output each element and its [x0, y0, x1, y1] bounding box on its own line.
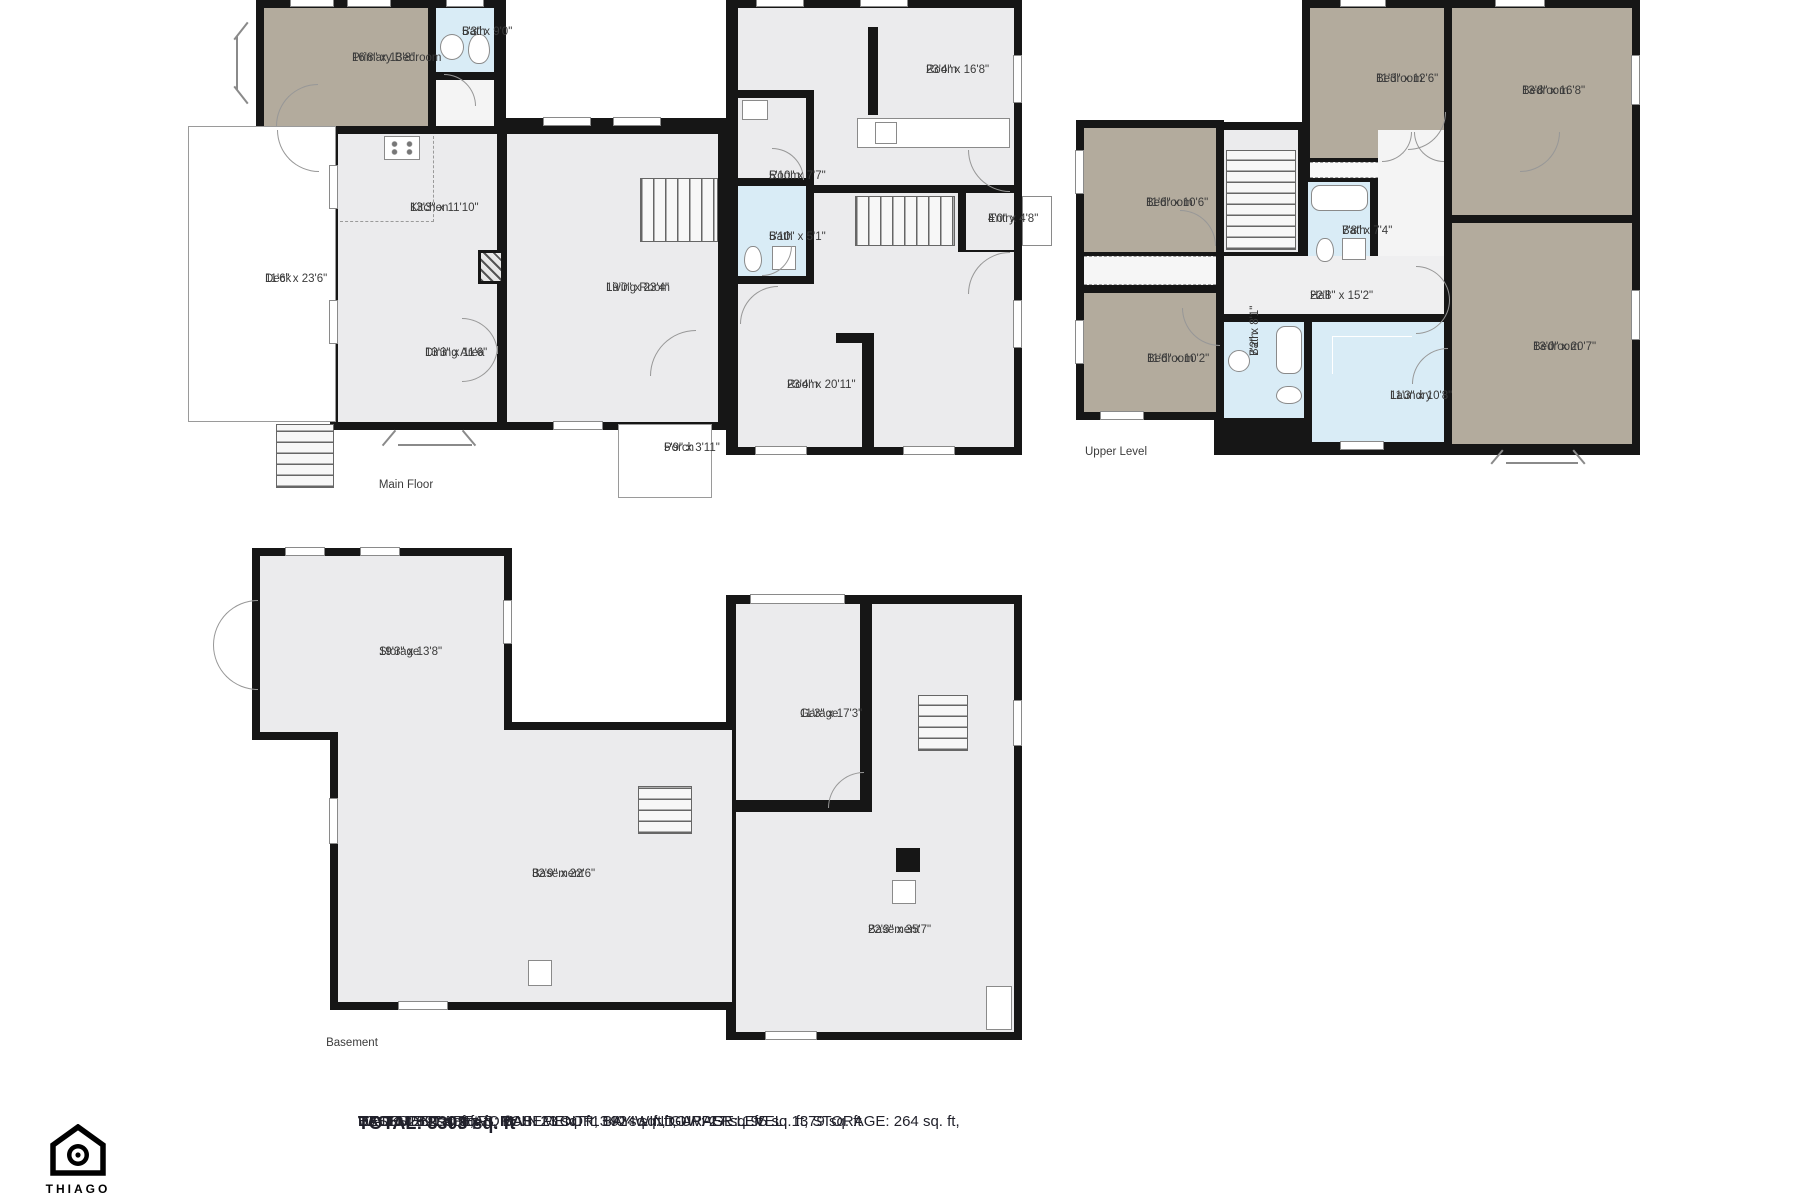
house-camera-logo-icon	[50, 1124, 106, 1176]
window	[613, 117, 661, 126]
closet-band	[1084, 256, 1216, 285]
room-dims: 11'3" x 12'6"	[1376, 72, 1438, 86]
room-dims: 22'8" x 15'2"	[1310, 289, 1373, 303]
floor-label-main: Main Floor	[379, 479, 433, 491]
room-dims: 19'0" x 23'4"	[606, 281, 669, 295]
window	[1340, 0, 1386, 7]
stairs	[855, 196, 955, 246]
floor-label-upper: Upper Level	[1085, 446, 1147, 458]
toilet-symbol	[1316, 238, 1334, 262]
wall-stub	[862, 333, 874, 447]
fireplace-symbol	[478, 250, 504, 284]
window	[329, 798, 338, 844]
floor-plan-canvas: Deck11'6" x 23'6" Primary Bedroom16'8" x…	[0, 0, 1800, 1200]
support-post	[528, 960, 552, 986]
stairs	[1226, 150, 1296, 250]
bay-window	[1506, 462, 1578, 464]
room-fill-basement-right	[736, 812, 1014, 1032]
window	[1100, 411, 1144, 420]
bay-window	[398, 444, 472, 446]
bay-window	[233, 22, 248, 41]
room-dims: 7'2" x 8'1"	[1248, 306, 1262, 356]
room-dims: 11'6" x 23'6"	[265, 272, 327, 286]
room-dims: 5'10" x 5'1"	[769, 230, 826, 244]
window	[1495, 0, 1545, 7]
room-dims: 5'3" x 9'0"	[462, 25, 512, 39]
room-dims: 23'4" x 20'11"	[787, 378, 856, 392]
porch-outline	[618, 424, 712, 498]
window	[1013, 55, 1022, 103]
window	[1075, 320, 1084, 364]
window	[329, 165, 338, 209]
room-dims: 11'3" x 10'8"	[1390, 389, 1452, 403]
window	[1013, 700, 1022, 746]
alcove	[986, 986, 1012, 1030]
laundry-counter	[1332, 336, 1412, 374]
window	[329, 300, 338, 344]
room-dims: 13'0" x 20'7"	[1533, 340, 1596, 354]
window	[860, 0, 908, 7]
room-dims: 4'0" x 4'8"	[988, 212, 1038, 226]
room-fill-bedroom-right	[1452, 223, 1632, 444]
room-dims: 19'3" x 13'8"	[379, 645, 442, 659]
room-fill-garage	[736, 604, 860, 800]
window	[503, 600, 512, 644]
room-dims: 22'3" x 35'7"	[868, 923, 931, 937]
room-fill-bedroom-top-right	[1452, 8, 1632, 215]
bathtub-symbol	[1311, 185, 1368, 211]
wall-stub	[868, 27, 878, 115]
window	[756, 0, 804, 7]
door-arc	[213, 645, 258, 690]
garage-door	[750, 594, 845, 604]
window	[1075, 150, 1084, 194]
stairs	[638, 786, 692, 834]
window	[290, 0, 334, 7]
room-fill-room-bottom	[738, 284, 1014, 447]
sink-symbol	[742, 100, 768, 120]
window	[1631, 290, 1640, 340]
bay-window	[233, 86, 248, 105]
window	[903, 446, 955, 455]
bay-window	[382, 430, 396, 447]
room-dims: 13'3" x 11'6"	[425, 346, 487, 360]
stairs	[918, 695, 968, 751]
toilet-symbol	[1276, 386, 1302, 404]
window	[1013, 300, 1022, 348]
window	[285, 547, 325, 556]
brand-name: THIAGO	[42, 1182, 114, 1196]
room-dims: 7'8" x 7'4"	[1342, 224, 1392, 238]
window	[446, 0, 484, 7]
window	[398, 1001, 448, 1010]
sink-symbol	[1342, 238, 1366, 260]
room-dims: 5'10" x 7'7"	[769, 169, 826, 183]
window	[347, 0, 391, 7]
sink-symbol	[1228, 350, 1250, 372]
support-post	[892, 880, 916, 904]
sink-symbol	[875, 122, 897, 144]
floor-label-basement: Basement	[326, 1037, 378, 1049]
room-dims: 11'6" x 10'6"	[1146, 196, 1208, 210]
room-dims: 32'9" x 22'6"	[532, 867, 595, 881]
window	[755, 446, 807, 455]
room-dims: 11'3" x 17'3"	[800, 707, 862, 721]
room-dims: 13'3" x 11'10"	[410, 201, 479, 215]
window	[360, 547, 400, 556]
stairs	[640, 178, 718, 242]
window	[553, 421, 603, 430]
window	[1631, 55, 1640, 105]
wall-stub	[836, 333, 862, 343]
toilet-symbol	[744, 246, 762, 272]
window	[543, 117, 591, 126]
room-dims: 13'8" x 16'8"	[1522, 84, 1585, 98]
sink-symbol	[440, 34, 464, 60]
window	[1340, 441, 1384, 450]
door-arc	[213, 600, 258, 645]
bay-window	[236, 36, 238, 90]
room-dims: 5'9" x 3'11"	[664, 441, 720, 455]
chimney-symbol	[896, 848, 920, 872]
room-fill-storage	[260, 556, 504, 732]
window	[765, 1031, 817, 1040]
room-dims: 11'6" x 10'2"	[1147, 352, 1209, 366]
deck-stairs	[276, 424, 334, 488]
bathtub-symbol	[1276, 326, 1302, 374]
room-dims: 16'8" x 13'8"	[352, 51, 415, 65]
summary-line: WALLS: 321 sq. ft	[358, 1112, 478, 1131]
room-dims: 23'4" x 16'8"	[926, 63, 989, 77]
